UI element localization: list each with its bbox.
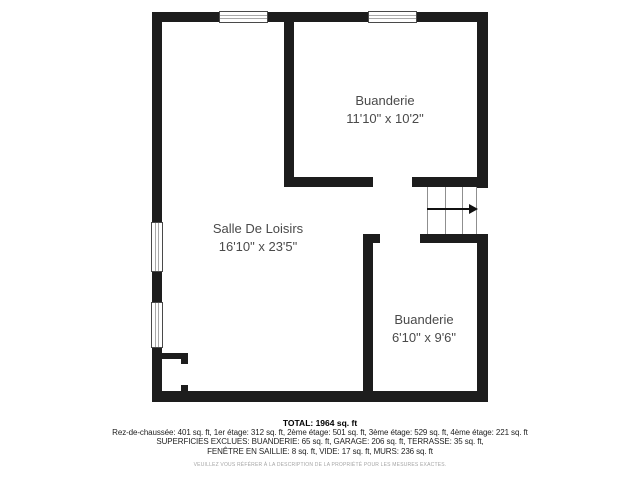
stair-edge-line	[427, 187, 428, 234]
disclaimer-text: VEUILLEZ VOUS RÉFÉRER À LA DESCRIPTION D…	[0, 462, 640, 468]
window-top-right	[368, 11, 417, 23]
room-dimensions: 6'10" x 9'6"	[334, 329, 514, 347]
stair-direction-arrow-icon	[469, 204, 478, 214]
floor-areas-text: Rez-de-chaussée: 401 sq. ft, 1er étage: …	[0, 428, 640, 437]
total-area-text: TOTAL: 1964 sq. ft	[0, 418, 640, 428]
room-name: Buanderie	[334, 311, 514, 329]
room-label-buanderie-lower: Buanderie 6'10" x 9'6"	[334, 311, 514, 347]
wall-bottom	[152, 391, 488, 402]
excluded-areas-text-1: SUPERFICIES EXCLUES: BUANDERIE: 65 sq. f…	[0, 437, 640, 446]
room-name: Salle De Loisirs	[168, 220, 348, 238]
room-name: Buanderie	[295, 92, 475, 110]
area-summary: TOTAL: 1964 sq. ft Rez-de-chaussée: 401 …	[0, 418, 640, 468]
stair-tread-line	[445, 187, 446, 234]
room-dimensions: 11'10" x 10'2"	[295, 110, 475, 128]
wall-divider-lower-right	[420, 234, 488, 243]
closet-door-jamb-top	[181, 353, 188, 364]
closet-door-jamb-bottom	[181, 385, 188, 391]
room-dimensions: 16'10" x 23'5"	[168, 238, 348, 256]
room-label-buanderie-upper: Buanderie 11'10" x 10'2"	[295, 92, 475, 128]
stair-direction-line	[427, 208, 470, 210]
wall-divider-upper-right	[412, 177, 488, 187]
window-left-upper	[151, 222, 163, 272]
stair-tread-line	[462, 187, 463, 234]
wall-right-upper	[477, 12, 488, 188]
window-left-lower	[151, 302, 163, 348]
wall-divider-upper-left	[284, 177, 373, 187]
room-label-salle-de-loisirs: Salle De Loisirs 16'10" x 23'5"	[168, 220, 348, 256]
wall-interior-vertical	[284, 22, 294, 187]
window-top-left	[219, 11, 268, 23]
wall-top	[152, 12, 488, 22]
excluded-areas-text-2: FENÊTRE EN SAILLIE: 8 sq. ft, VIDE: 17 s…	[0, 447, 640, 456]
floorplan-page: Buanderie 11'10" x 10'2" Salle De Loisir…	[0, 0, 640, 480]
